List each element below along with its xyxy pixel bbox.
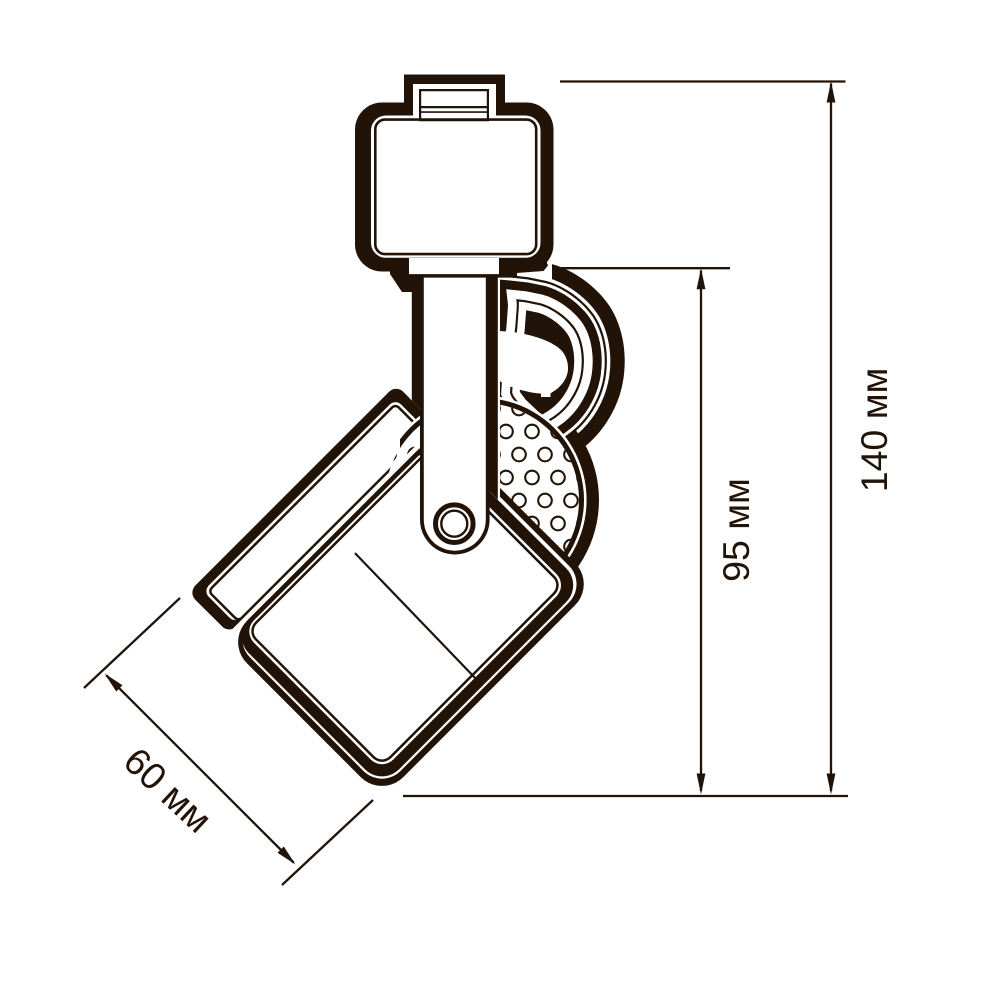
svg-text:95 мм: 95 мм (715, 478, 757, 582)
svg-text:140 мм: 140 мм (853, 368, 895, 493)
